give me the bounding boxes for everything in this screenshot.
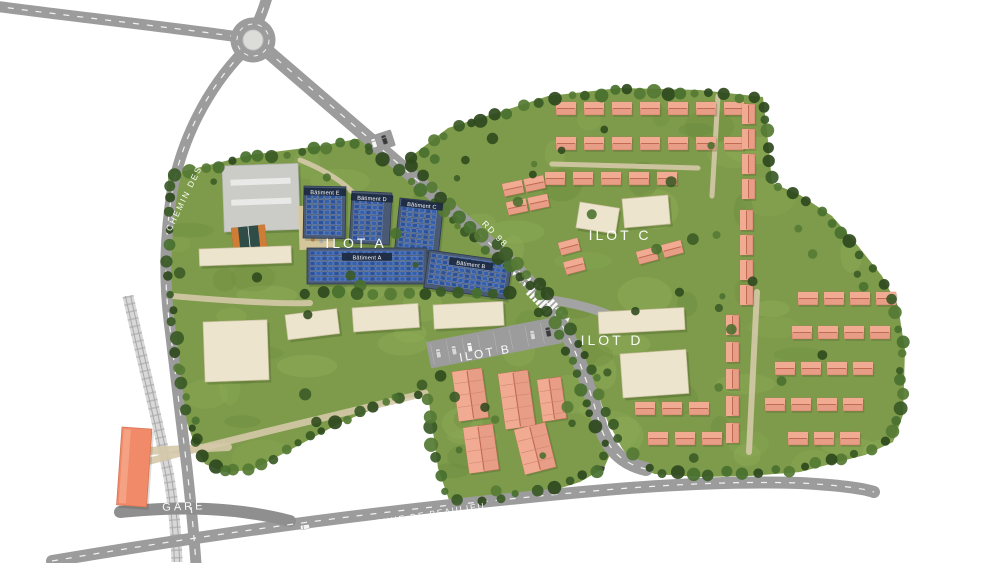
tree	[452, 210, 465, 223]
solar-panel	[370, 277, 375, 281]
solar-panel	[324, 221, 329, 225]
solar-panel	[416, 239, 421, 244]
house-roof	[724, 137, 744, 144]
solar-panel	[464, 274, 470, 279]
solar-panel	[430, 225, 435, 230]
house-roof	[662, 402, 682, 409]
street-tree	[419, 288, 431, 300]
solar-panel	[430, 220, 435, 225]
street-tree	[503, 286, 517, 300]
tree	[600, 126, 608, 134]
solar-panel	[406, 267, 411, 271]
solar-panel	[482, 276, 488, 281]
tree	[573, 369, 581, 377]
tree	[548, 92, 562, 106]
solar-panel	[322, 251, 327, 255]
tree	[704, 88, 713, 97]
solar-panel	[500, 279, 506, 284]
tree	[761, 124, 775, 138]
house-roof	[702, 432, 722, 439]
tree	[539, 452, 546, 459]
road-west-arm	[0, 6, 232, 36]
tree	[603, 368, 611, 376]
house-roof	[824, 292, 844, 299]
solar-panel	[382, 267, 387, 271]
tree	[335, 138, 345, 148]
tree	[897, 388, 909, 400]
tree	[558, 147, 565, 154]
tree	[393, 164, 405, 176]
house-roof	[817, 398, 837, 405]
solar-panel	[306, 220, 311, 224]
solar-panel	[501, 274, 507, 279]
grass-dark	[778, 176, 827, 193]
tree	[859, 282, 869, 292]
tree	[564, 323, 577, 336]
slab-roof	[433, 301, 504, 329]
house-roof	[740, 260, 747, 280]
tree	[501, 108, 512, 119]
solar-panel	[334, 267, 339, 271]
tree	[651, 244, 662, 255]
solar-panel	[433, 280, 439, 285]
tree	[354, 406, 365, 417]
solar-panel	[336, 226, 341, 230]
tree	[390, 228, 402, 240]
solar-panel	[476, 281, 482, 286]
building-slab	[352, 303, 422, 334]
tree	[593, 374, 601, 382]
tree	[714, 383, 723, 392]
banner-text-batiment-a: Bâtiment A	[352, 255, 381, 261]
solar-panel	[423, 230, 428, 235]
tree	[430, 154, 440, 164]
house-roof	[798, 292, 818, 299]
solar-panel	[418, 272, 423, 276]
train-station-gare	[116, 427, 154, 510]
tree	[783, 466, 795, 478]
solar-panel	[470, 280, 476, 285]
solar-panel	[328, 267, 333, 271]
solar-panel	[366, 216, 371, 220]
solar-panel	[412, 251, 417, 255]
tree	[408, 178, 415, 185]
slab-roof	[352, 303, 420, 332]
tree	[252, 272, 262, 282]
tree	[894, 401, 908, 415]
tree	[529, 171, 537, 179]
tree	[242, 463, 254, 475]
tree	[170, 331, 184, 345]
tree	[534, 98, 544, 108]
tree	[589, 420, 603, 434]
tree	[898, 349, 907, 358]
tree	[382, 398, 390, 406]
solar-panel	[318, 231, 323, 235]
slab-roof	[222, 163, 300, 232]
solar-panel	[378, 216, 383, 220]
tree	[771, 465, 780, 474]
solar-panel	[400, 272, 405, 276]
tree	[866, 444, 877, 455]
house-roof	[850, 292, 870, 299]
solar-panel	[330, 221, 335, 225]
tree	[591, 465, 604, 478]
tree	[854, 271, 861, 278]
solar-panel	[445, 282, 451, 287]
tree	[413, 183, 427, 197]
tree	[658, 469, 667, 478]
tree	[817, 207, 827, 217]
tree	[299, 388, 311, 400]
solar-panel	[360, 210, 365, 214]
solar-panel	[306, 215, 311, 219]
solar-panel	[372, 211, 377, 215]
tree	[422, 394, 433, 405]
house-roof	[814, 432, 834, 439]
sports-court	[231, 224, 267, 249]
solar-panel	[318, 220, 323, 224]
solar-panel	[346, 267, 351, 271]
solar-panel	[394, 256, 399, 260]
tree	[869, 264, 877, 272]
tree	[569, 91, 577, 99]
house-cluster	[556, 102, 745, 117]
house-cluster	[788, 432, 861, 447]
solar-panel	[496, 268, 502, 273]
tree	[449, 392, 460, 403]
building-slab	[620, 349, 691, 400]
solar-panel	[447, 266, 453, 271]
solar-panel	[431, 253, 437, 258]
tree	[808, 249, 818, 259]
grass-light	[378, 332, 429, 356]
tree	[189, 424, 196, 431]
masterplan-canvas: CHEMIN DES LAUGIERS RD 98 AVENUE DE BEAU…	[0, 0, 1000, 563]
street-tree	[472, 288, 483, 299]
solar-panel	[334, 277, 339, 281]
solar-panel	[406, 256, 411, 260]
tree	[166, 291, 174, 299]
house-roof	[792, 326, 812, 333]
solar-panel	[322, 256, 327, 260]
solar-panel	[322, 277, 327, 281]
house-roof	[612, 137, 632, 144]
tree	[294, 439, 301, 446]
solar-panel	[394, 267, 399, 271]
solar-panel	[336, 221, 341, 225]
solar-panel	[377, 221, 382, 225]
tree	[850, 450, 858, 458]
tree	[707, 142, 715, 150]
solar-panel	[477, 270, 483, 275]
tree	[662, 87, 676, 101]
solar-panel	[353, 225, 358, 229]
tree	[306, 431, 315, 440]
solar-panel	[310, 256, 315, 260]
tree	[210, 178, 217, 185]
solar-panel	[307, 205, 312, 209]
tree	[761, 115, 770, 124]
tree	[561, 347, 570, 356]
solar-panel	[417, 234, 422, 239]
tree	[888, 305, 901, 318]
house-roof	[742, 104, 749, 124]
solar-panel	[340, 272, 345, 276]
solar-panel	[334, 261, 339, 265]
solar-panel	[328, 261, 333, 265]
tree	[180, 404, 191, 415]
solar-panel	[470, 275, 476, 280]
solar-panel	[447, 271, 453, 276]
tree	[434, 192, 447, 205]
solar-panel	[319, 200, 324, 204]
solar-panel	[464, 279, 470, 284]
solar-panel	[434, 275, 440, 280]
house-roof	[640, 102, 660, 109]
solar-panel	[398, 243, 403, 248]
tree	[562, 401, 574, 413]
solar-panel	[406, 251, 411, 255]
tree	[440, 132, 448, 140]
building-slab	[433, 301, 507, 332]
tree	[428, 134, 440, 146]
solar-panel	[435, 270, 441, 275]
house-roof	[801, 362, 821, 369]
tree	[886, 294, 897, 305]
solar-panel	[316, 251, 321, 255]
solar-panel	[337, 200, 342, 204]
tree	[646, 464, 654, 472]
solar-panel	[382, 272, 387, 276]
tree	[896, 367, 903, 374]
solar-panel	[394, 277, 399, 281]
solar-panel	[358, 267, 363, 271]
house-roof	[843, 398, 863, 405]
solar-panel	[413, 213, 418, 218]
tree	[759, 102, 770, 113]
tree	[454, 175, 460, 181]
tree	[265, 150, 278, 163]
tree	[405, 159, 418, 172]
grass-dark	[334, 449, 351, 470]
tree	[749, 92, 760, 103]
house-roof	[545, 172, 565, 179]
house-cluster	[556, 137, 745, 152]
solar-panel	[359, 226, 364, 230]
solar-panel	[313, 205, 318, 209]
tree	[518, 99, 530, 111]
tree	[595, 89, 609, 103]
house-roof	[742, 129, 749, 149]
solar-panel	[354, 205, 359, 209]
solar-panel	[365, 221, 370, 225]
tree	[894, 326, 902, 334]
tree	[634, 88, 646, 100]
grass-dark	[793, 153, 821, 183]
tree	[881, 436, 890, 445]
solar-panel	[364, 272, 369, 276]
tree	[581, 351, 589, 359]
solar-panel	[430, 259, 436, 264]
masterplan: CHEMIN DES LAUGIERS RD 98 AVENUE DE BEAU…	[0, 0, 1000, 563]
slab-roof	[622, 195, 670, 228]
solar-panel	[334, 272, 339, 276]
solar-panel	[488, 282, 494, 287]
tree	[453, 120, 465, 132]
tree	[801, 463, 809, 471]
tree	[165, 192, 175, 202]
tree	[691, 89, 699, 97]
tree	[817, 350, 827, 360]
tree	[626, 447, 639, 460]
grass-dark	[316, 449, 334, 483]
solar-panel	[324, 215, 329, 219]
solar-panel	[428, 241, 433, 246]
tree	[499, 247, 513, 261]
tree	[554, 330, 564, 340]
tree	[365, 147, 373, 155]
solar-panel	[489, 272, 495, 277]
tree	[674, 88, 686, 100]
building-slab	[199, 246, 294, 269]
tree	[182, 393, 190, 401]
tree	[343, 416, 352, 425]
solar-panel	[451, 282, 457, 287]
solar-panel	[371, 226, 376, 230]
solar-panel	[465, 269, 471, 274]
solar-panel	[310, 251, 315, 255]
street-tree	[404, 288, 415, 299]
solar-panel	[412, 223, 417, 228]
tree	[424, 410, 437, 423]
tree	[713, 231, 721, 239]
solar-panel	[476, 276, 482, 281]
solar-panel	[431, 215, 436, 220]
solar-panel	[418, 256, 423, 260]
solar-panel	[376, 261, 381, 265]
tree	[298, 148, 306, 156]
solar-panel	[358, 261, 363, 265]
solar-panel	[458, 278, 464, 283]
street-tree	[488, 289, 498, 299]
house-roof	[584, 102, 604, 109]
banner-text-batiment-e: Bâtiment E	[310, 190, 340, 197]
tree	[480, 403, 489, 412]
tree	[164, 181, 175, 192]
tree	[473, 114, 487, 128]
tree	[419, 147, 430, 158]
solar-panel	[442, 260, 448, 265]
solar-panel	[418, 251, 423, 255]
tree	[555, 307, 568, 320]
solar-panel	[352, 261, 357, 265]
tree	[855, 250, 864, 259]
tree	[726, 324, 737, 335]
banner-batiment-a: Bâtiment A	[342, 253, 392, 261]
tree	[413, 262, 419, 268]
solar-panel	[316, 267, 321, 271]
solar-panel	[423, 235, 428, 240]
tree	[255, 458, 267, 470]
tree	[580, 91, 590, 101]
tree	[736, 468, 748, 480]
solar-panel	[422, 240, 427, 245]
solar-panel	[306, 225, 311, 229]
solar-panel	[435, 265, 441, 270]
tree	[583, 399, 591, 407]
house-roof	[556, 137, 576, 144]
house-cluster	[726, 315, 740, 445]
slab-roof	[620, 349, 689, 397]
solar-panel	[360, 205, 365, 209]
grass-dark	[377, 426, 425, 452]
solar-panel	[427, 279, 433, 284]
tree	[175, 377, 188, 390]
house-roof	[788, 432, 808, 439]
solar-panel	[407, 217, 412, 222]
street-tree	[384, 288, 397, 301]
tree	[491, 485, 502, 496]
tree	[689, 453, 699, 463]
tree	[426, 182, 437, 193]
solar-panel	[378, 206, 383, 210]
solar-panel	[334, 251, 339, 255]
solar-panel	[429, 235, 434, 240]
grass-dark	[777, 110, 828, 127]
tree	[283, 152, 290, 159]
tree	[454, 223, 460, 229]
solar-panel	[488, 277, 494, 282]
solar-panel	[331, 200, 336, 204]
tree	[671, 465, 685, 479]
solar-panel	[430, 264, 436, 269]
house-roof	[740, 285, 747, 305]
solar-panel	[382, 277, 387, 281]
solar-panel	[401, 212, 406, 217]
solar-panel	[331, 205, 336, 209]
tree	[417, 170, 429, 182]
tree	[346, 270, 356, 280]
solar-panel	[400, 261, 405, 265]
house-roof	[601, 172, 621, 179]
tree	[512, 490, 519, 497]
road-label-gare: GARE	[162, 500, 206, 513]
solar-panel	[330, 226, 335, 230]
solar-panel	[471, 270, 477, 275]
solar-panel	[306, 231, 311, 235]
house-roof	[635, 402, 655, 409]
slab-roof	[199, 246, 292, 266]
solar-panel	[413, 218, 418, 223]
tree	[533, 278, 546, 291]
solar-panel	[388, 267, 393, 271]
tree	[522, 270, 531, 279]
tree	[613, 434, 622, 443]
solar-panel	[411, 234, 416, 239]
solar-panel	[312, 215, 317, 219]
tree	[809, 457, 821, 469]
tree	[585, 409, 593, 417]
solar-panel	[483, 271, 489, 276]
tree	[240, 151, 251, 162]
solar-panel	[429, 269, 435, 274]
solar-panel	[446, 276, 452, 281]
slab-roof	[598, 307, 685, 333]
solar-panel	[313, 200, 318, 204]
tree	[534, 308, 544, 318]
solar-panel	[400, 251, 405, 255]
